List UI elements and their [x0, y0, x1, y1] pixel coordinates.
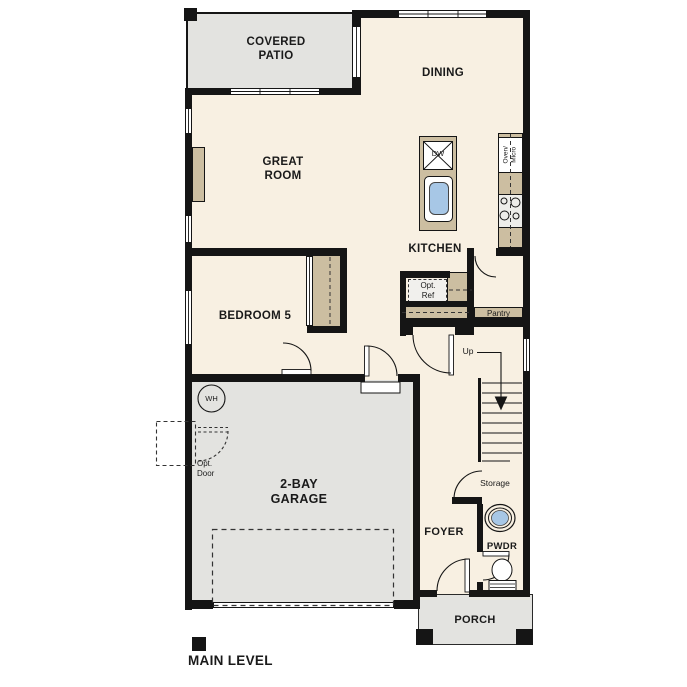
window — [185, 290, 192, 345]
wall — [452, 497, 482, 504]
opt-ref-label: Opt. Ref — [415, 281, 441, 301]
great-room-label: GREAT ROOM — [247, 156, 319, 184]
wall — [340, 248, 347, 333]
wall — [523, 10, 530, 597]
wall — [186, 12, 188, 90]
window — [523, 338, 530, 372]
garage-door — [213, 602, 394, 608]
oven-micro-label: Oven/ Micro — [498, 137, 523, 173]
closet-casework — [313, 256, 340, 326]
pwdr-label: PWDR — [482, 541, 522, 552]
wall — [400, 327, 413, 335]
window — [185, 108, 192, 134]
wall — [185, 248, 347, 256]
pantry-label: Pantry — [474, 309, 523, 319]
wall — [400, 301, 474, 307]
opt-door-label: Opt. Door — [197, 459, 223, 479]
window — [352, 26, 361, 78]
wall — [478, 378, 481, 462]
wall — [455, 327, 474, 335]
porch-label: PORCH — [443, 614, 507, 627]
window — [185, 215, 192, 243]
covered-patio-label: COVERED PATIO — [235, 36, 317, 64]
window — [398, 10, 487, 18]
wall — [185, 88, 192, 610]
garage-label: 2-BAY GARAGE — [258, 477, 340, 507]
porch-post — [416, 629, 433, 645]
kitchen-back-counter — [400, 307, 474, 318]
wall — [420, 590, 437, 597]
foyer-label: FOYER — [417, 526, 471, 539]
wall — [307, 326, 347, 333]
wall — [400, 318, 523, 327]
wall — [496, 248, 530, 256]
wall — [185, 600, 213, 609]
water-heater-label: WH — [201, 394, 222, 403]
wall — [467, 248, 474, 318]
floor-plan: COVERED PATIO DINING GREAT ROOM KITCHEN … — [0, 0, 687, 687]
kitchen-sink-basin — [429, 182, 449, 215]
bedroom5-label: BEDROOM 5 — [200, 310, 310, 324]
site-post — [192, 637, 206, 651]
storage-label: Storage — [470, 478, 520, 488]
main-level-label: MAIN LEVEL — [188, 653, 338, 669]
dining-label: DINING — [403, 67, 483, 81]
kitchen-label: KITCHEN — [399, 243, 471, 257]
wall — [185, 374, 365, 382]
porch-post — [516, 629, 533, 645]
up-label: Up — [459, 346, 477, 356]
cooktop — [498, 194, 523, 228]
wall — [469, 590, 530, 597]
patio-sliding-door — [230, 88, 320, 95]
dishwasher-label: DW — [427, 149, 449, 158]
fireplace-niche — [192, 147, 205, 202]
wall — [186, 12, 354, 14]
wall — [413, 374, 420, 607]
wall — [400, 271, 450, 278]
wall — [394, 600, 420, 609]
